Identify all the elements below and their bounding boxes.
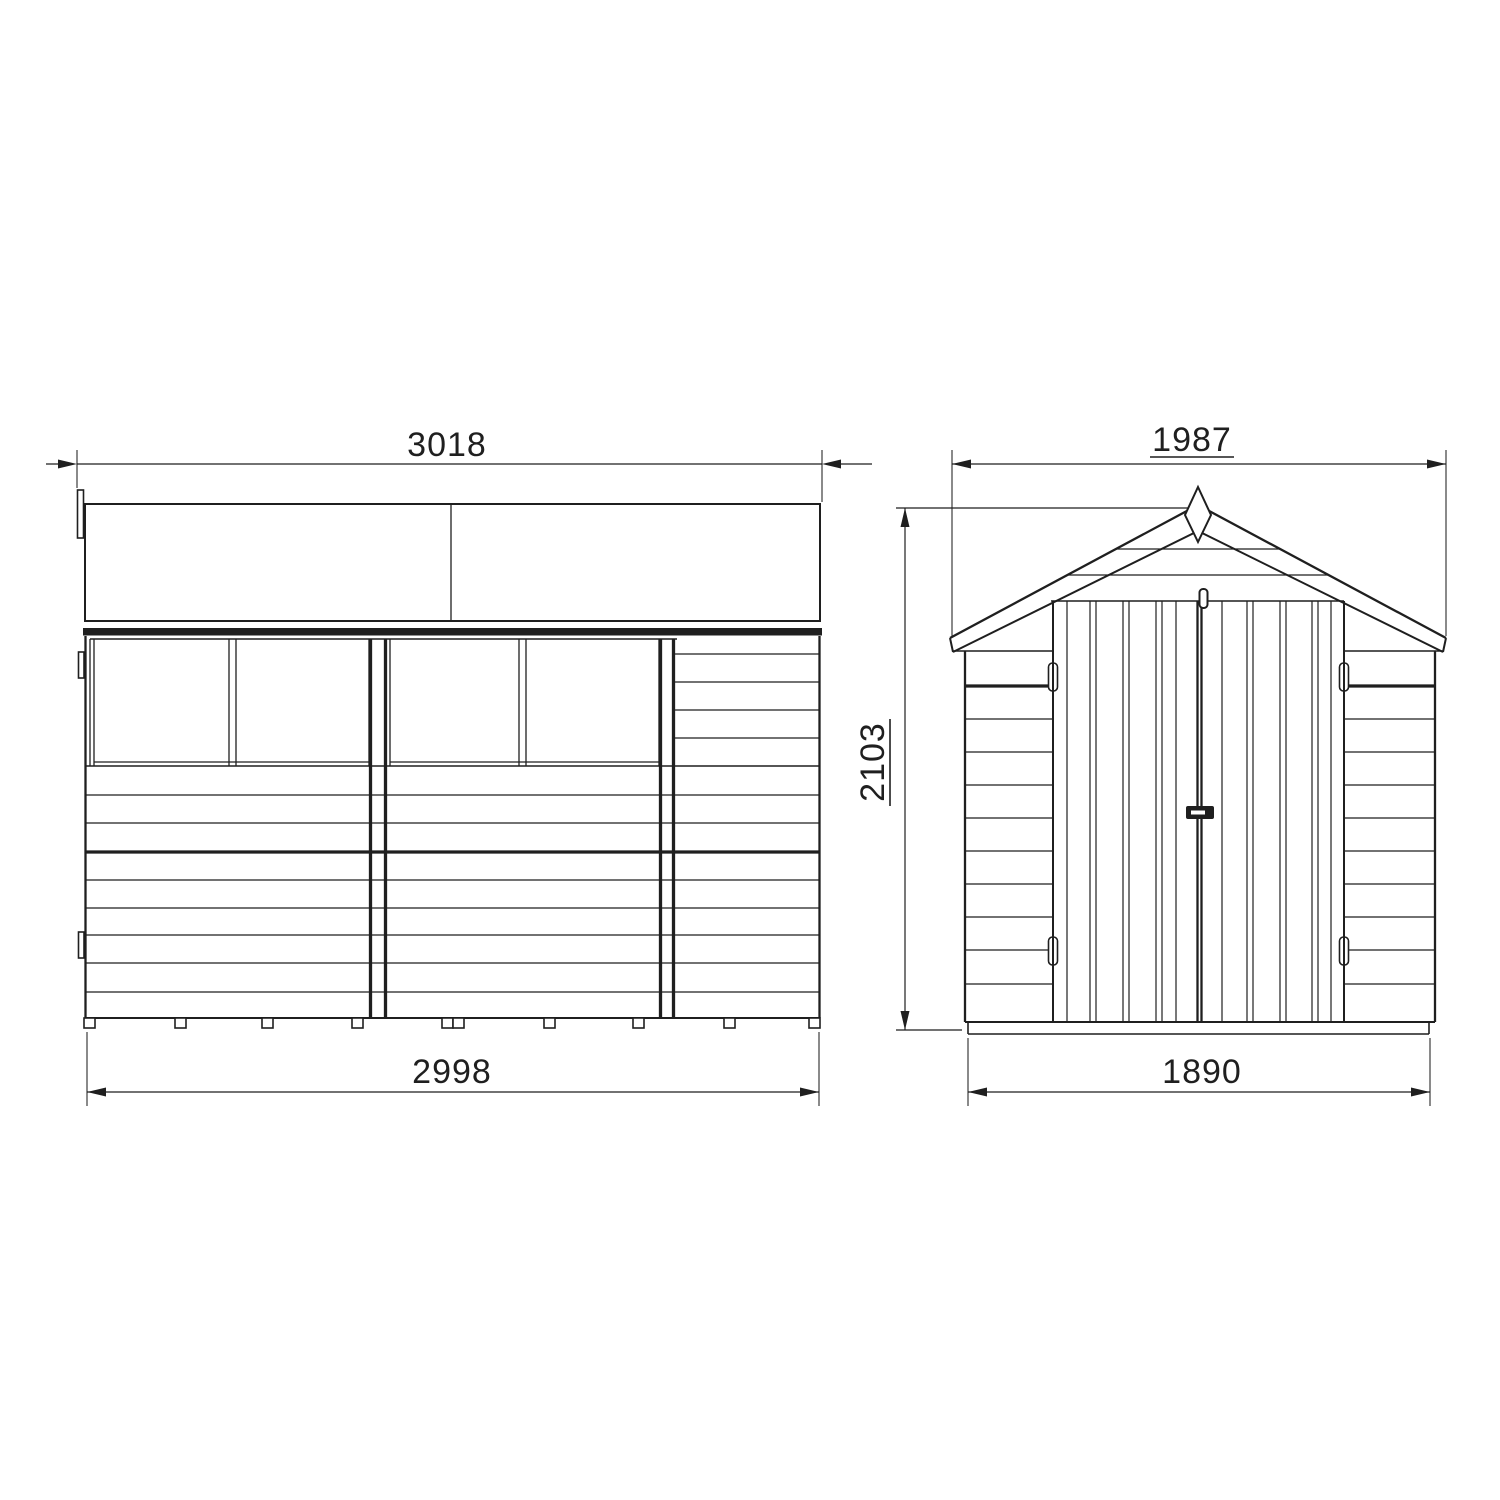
shed-dimension-drawing: 3018 xyxy=(0,0,1500,1500)
arrowhead-icon xyxy=(822,460,841,469)
door-hinge-edge xyxy=(79,652,85,678)
double-doors xyxy=(1049,589,1349,1021)
dim-front-height: 2103 xyxy=(854,508,1189,1030)
arrowhead-icon xyxy=(1411,1088,1430,1097)
fascia-band xyxy=(83,628,822,636)
side-roof xyxy=(78,490,823,636)
drawing-canvas: 3018 xyxy=(0,0,1500,1500)
wall-stud-dividers xyxy=(371,639,674,1018)
side-elevation-view: 3018 xyxy=(46,426,872,1106)
front-elevation-view: 1987 2103 xyxy=(854,421,1446,1106)
dim-label-side-roof-width: 3018 xyxy=(407,426,487,464)
arrowhead-icon xyxy=(901,1011,910,1030)
arrowhead-icon xyxy=(952,460,971,469)
window-frames xyxy=(90,639,659,766)
wall-corner-edges xyxy=(86,636,820,1018)
dim-side-base-width: 2998 xyxy=(87,1032,819,1106)
arrowhead-icon xyxy=(1427,460,1446,469)
arrowhead-icon xyxy=(87,1088,106,1097)
door-top-pin-hinge xyxy=(1200,589,1208,608)
floor-bearer-feet xyxy=(84,1018,820,1028)
cladding-boards xyxy=(965,719,1435,984)
door-hinge-edge xyxy=(79,932,85,958)
side-wall xyxy=(79,636,821,1028)
door-latch-slot xyxy=(1191,811,1205,815)
dim-side-roof-width: 3018 xyxy=(46,426,872,502)
dim-label-front-base-width: 1890 xyxy=(1162,1053,1242,1091)
dim-label-front-height: 2103 xyxy=(854,722,892,802)
roof-finial xyxy=(1185,487,1211,542)
cladding-upper-right xyxy=(674,654,819,738)
floor-bearer-outline xyxy=(968,1022,1429,1034)
cladding-boards xyxy=(85,795,820,992)
barge-board-trim xyxy=(78,490,84,538)
wall-corner-edges xyxy=(965,651,1435,1022)
dim-label-front-roof-width: 1987 xyxy=(1152,421,1232,459)
arrowhead-icon xyxy=(968,1088,987,1097)
roof-panel xyxy=(85,504,820,621)
dim-front-base-width: 1890 xyxy=(968,1038,1430,1106)
arrowhead-icon xyxy=(800,1088,819,1097)
dim-label-side-base-width: 2998 xyxy=(412,1053,492,1091)
floor-bearer xyxy=(968,1022,1429,1034)
arrowhead-icon xyxy=(58,460,77,469)
arrowhead-icon xyxy=(901,508,910,527)
reference-lines xyxy=(896,508,1189,1030)
extension-lines xyxy=(952,450,1446,636)
